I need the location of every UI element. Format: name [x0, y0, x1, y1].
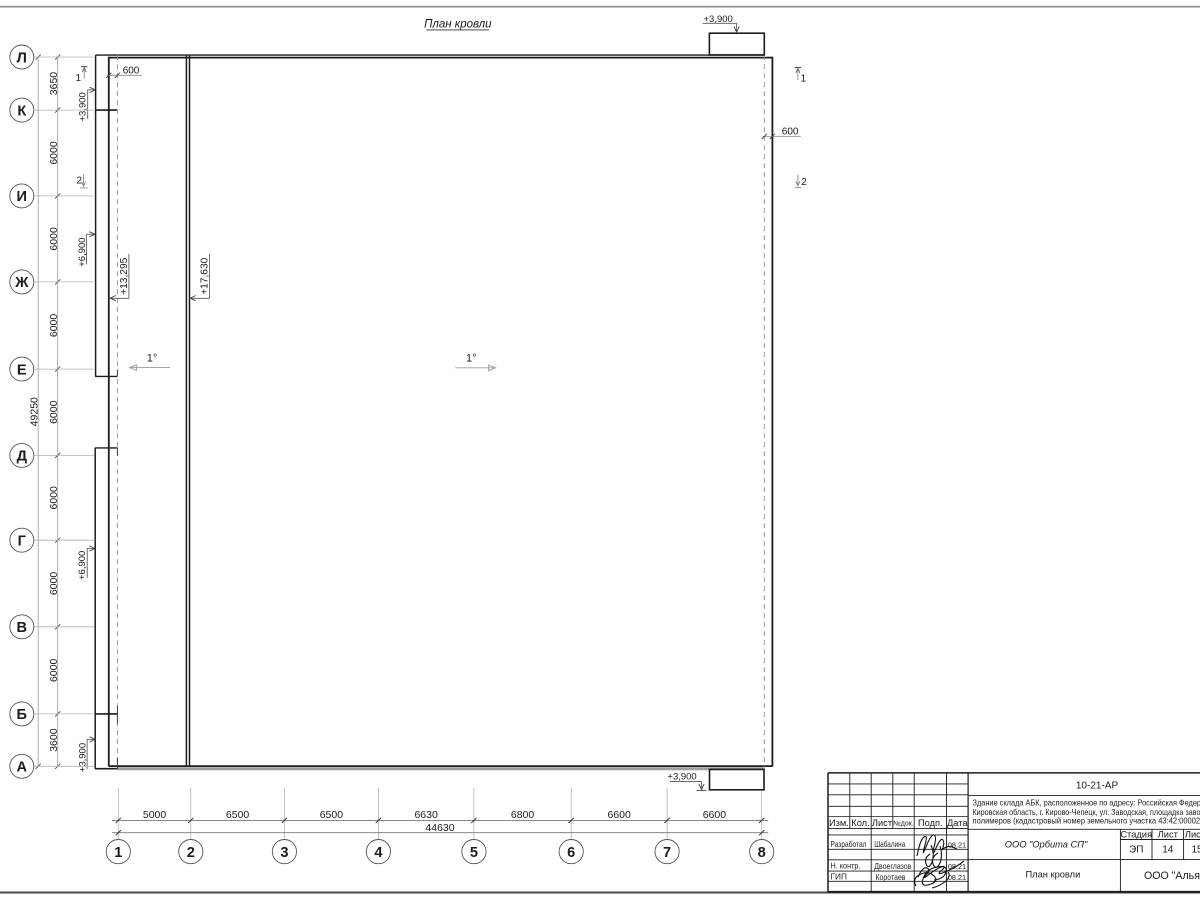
svg-text:6000: 6000 — [48, 400, 60, 424]
svg-text:Дата: Дата — [947, 818, 968, 828]
svg-text:Изм.: Изм. — [829, 818, 849, 828]
svg-text:К: К — [17, 103, 26, 119]
svg-text:Лист: Лист — [872, 818, 893, 828]
svg-text:5: 5 — [470, 845, 478, 861]
svg-text:4: 4 — [374, 845, 383, 861]
svg-text:Шабалина: Шабалина — [874, 839, 905, 849]
svg-text:6000: 6000 — [48, 314, 60, 338]
svg-text:Коротаев: Коротаев — [876, 872, 906, 882]
svg-text:Стадия: Стадия — [1120, 830, 1152, 840]
svg-text:В: В — [17, 620, 28, 636]
svg-text:Двоеглазов: Двоеглазов — [874, 861, 911, 871]
svg-text:6600: 6600 — [607, 809, 631, 821]
svg-text:600: 600 — [782, 127, 799, 138]
svg-text:Кол.: Кол. — [851, 818, 869, 828]
svg-text:И: И — [17, 189, 28, 205]
svg-text:6000: 6000 — [48, 141, 60, 165]
svg-text:Л: Л — [17, 50, 27, 66]
svg-text:2: 2 — [187, 845, 195, 861]
svg-text:8: 8 — [758, 845, 766, 861]
svg-text:6630: 6630 — [414, 809, 438, 821]
svg-text:ООО "Альянспроект": ООО "Альянспроект" — [1144, 870, 1200, 882]
svg-text:2: 2 — [801, 177, 807, 188]
svg-text:полимеров (кадастровый номер з: полимеров (кадастровый номер земельного … — [973, 815, 1200, 825]
svg-text:Подп.: Подп. — [918, 818, 943, 828]
svg-text:6000: 6000 — [48, 572, 60, 596]
svg-text:15: 15 — [1191, 845, 1200, 856]
svg-text:6800: 6800 — [511, 809, 535, 821]
svg-text:6000: 6000 — [48, 227, 60, 251]
svg-text:7: 7 — [663, 845, 671, 861]
svg-text:600: 600 — [123, 65, 140, 76]
svg-text:+6,900: +6,900 — [77, 237, 88, 266]
svg-text:10-21-АР: 10-21-АР — [1076, 780, 1119, 791]
svg-text:+13,295: +13,295 — [119, 257, 130, 294]
svg-text:Б: Б — [17, 707, 28, 723]
svg-text:1: 1 — [801, 74, 807, 85]
svg-text:6600: 6600 — [703, 809, 727, 821]
svg-text:№док.: №док. — [893, 820, 914, 827]
svg-text:+3,900: +3,900 — [667, 772, 696, 783]
svg-text:ГИП: ГИП — [831, 872, 847, 882]
svg-text:1: 1 — [76, 73, 82, 84]
svg-text:ООО "Орбита СП": ООО "Орбита СП" — [1005, 840, 1088, 850]
svg-text:А: А — [17, 760, 28, 776]
svg-text:2: 2 — [77, 175, 83, 186]
svg-text:Лист: Лист — [1158, 830, 1179, 840]
svg-text:44630: 44630 — [425, 822, 454, 834]
svg-text:Листов: Листов — [1185, 830, 1200, 840]
svg-text:6000: 6000 — [48, 659, 60, 683]
svg-text:1: 1 — [114, 845, 122, 861]
svg-text:14: 14 — [1162, 845, 1174, 856]
svg-text:6000: 6000 — [48, 486, 60, 510]
svg-text:Е: Е — [17, 362, 27, 378]
svg-text:6500: 6500 — [320, 809, 344, 821]
svg-text:6: 6 — [567, 845, 575, 861]
svg-text:5000: 5000 — [143, 809, 167, 821]
svg-text:Ж: Ж — [14, 275, 29, 291]
svg-text:+6,900: +6,900 — [77, 551, 88, 580]
svg-text:6500: 6500 — [226, 809, 250, 821]
svg-text:Разработал: Разработал — [831, 839, 867, 849]
svg-text:Д: Д — [17, 449, 28, 465]
svg-text:3650: 3650 — [48, 72, 60, 96]
svg-text:08.21: 08.21 — [948, 873, 966, 882]
svg-text:+3,900: +3,900 — [78, 92, 89, 121]
svg-text:+17,630: +17,630 — [199, 257, 210, 294]
svg-text:План кровли: План кровли — [424, 19, 492, 31]
svg-text:3: 3 — [280, 845, 288, 861]
svg-text:08.21: 08.21 — [948, 841, 966, 850]
svg-text:49250: 49250 — [28, 397, 40, 426]
svg-text:Г: Г — [18, 534, 26, 550]
svg-text:ЭП: ЭП — [1129, 845, 1143, 856]
svg-text:1°: 1° — [466, 352, 477, 364]
svg-text:1°: 1° — [147, 352, 158, 364]
svg-text:Н. контр.: Н. контр. — [831, 861, 861, 871]
svg-text:3600: 3600 — [48, 728, 60, 752]
svg-text:План кровли: План кровли — [1026, 869, 1081, 879]
